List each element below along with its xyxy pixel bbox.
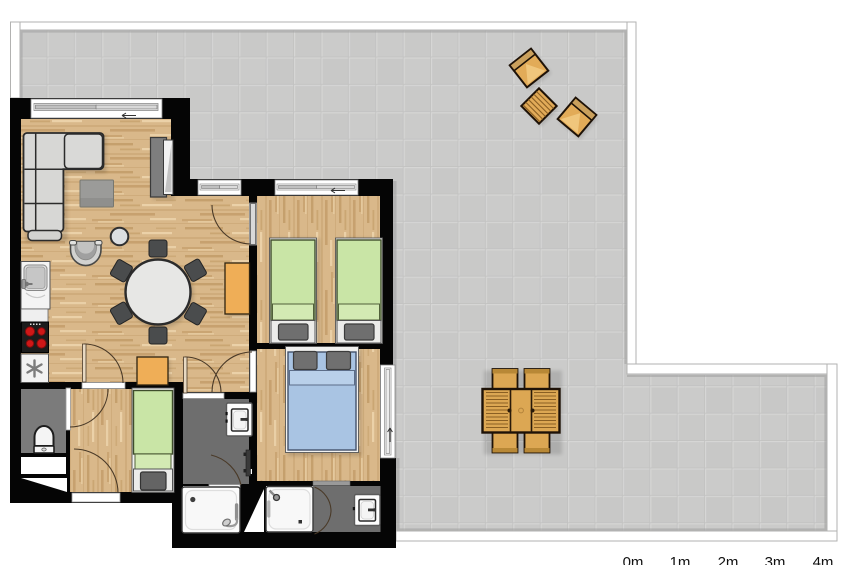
svg-text:1m: 1m [670, 554, 691, 565]
svg-text:4m: 4m [813, 554, 834, 565]
svg-text:3m: 3m [765, 554, 786, 565]
svg-text:2m: 2m [718, 554, 739, 565]
svg-text:0m: 0m [623, 554, 644, 565]
